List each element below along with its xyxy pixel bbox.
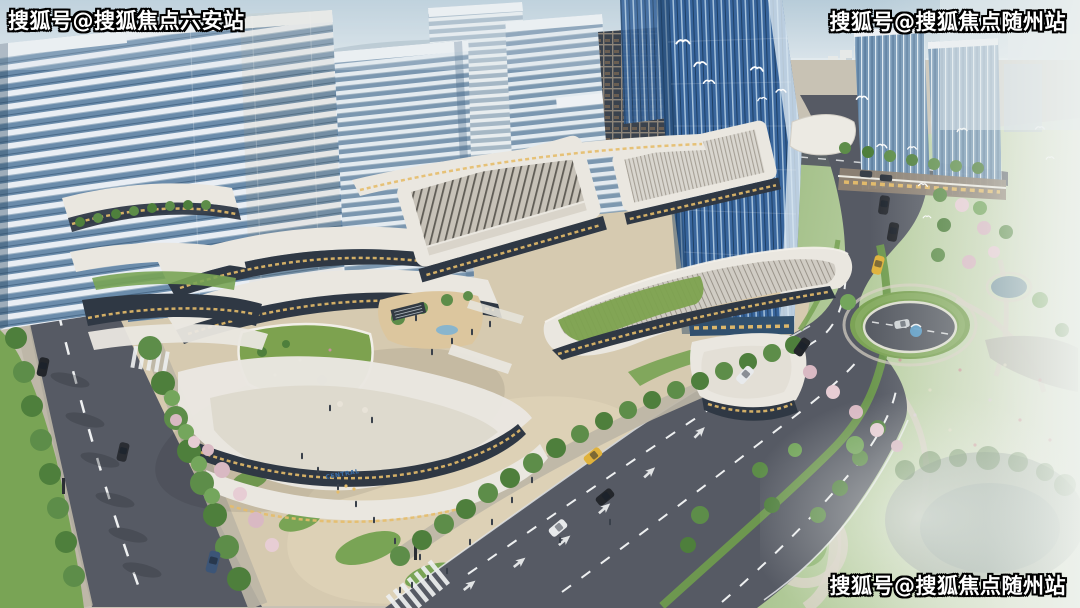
rendering-canvas: CENTRAL	[0, 0, 1080, 608]
watermark-top-right: 搜狐号@搜狐焦点随州站	[830, 9, 1067, 35]
court-pool	[436, 325, 458, 335]
watermark-bottom-right: 搜狐号@搜狐焦点随州站	[830, 573, 1067, 599]
watermark-top-left: 搜狐号@搜狐焦点六安站	[8, 8, 245, 34]
aerial-rendering: CENTRAL	[0, 0, 1080, 608]
traffic-light	[62, 478, 65, 494]
